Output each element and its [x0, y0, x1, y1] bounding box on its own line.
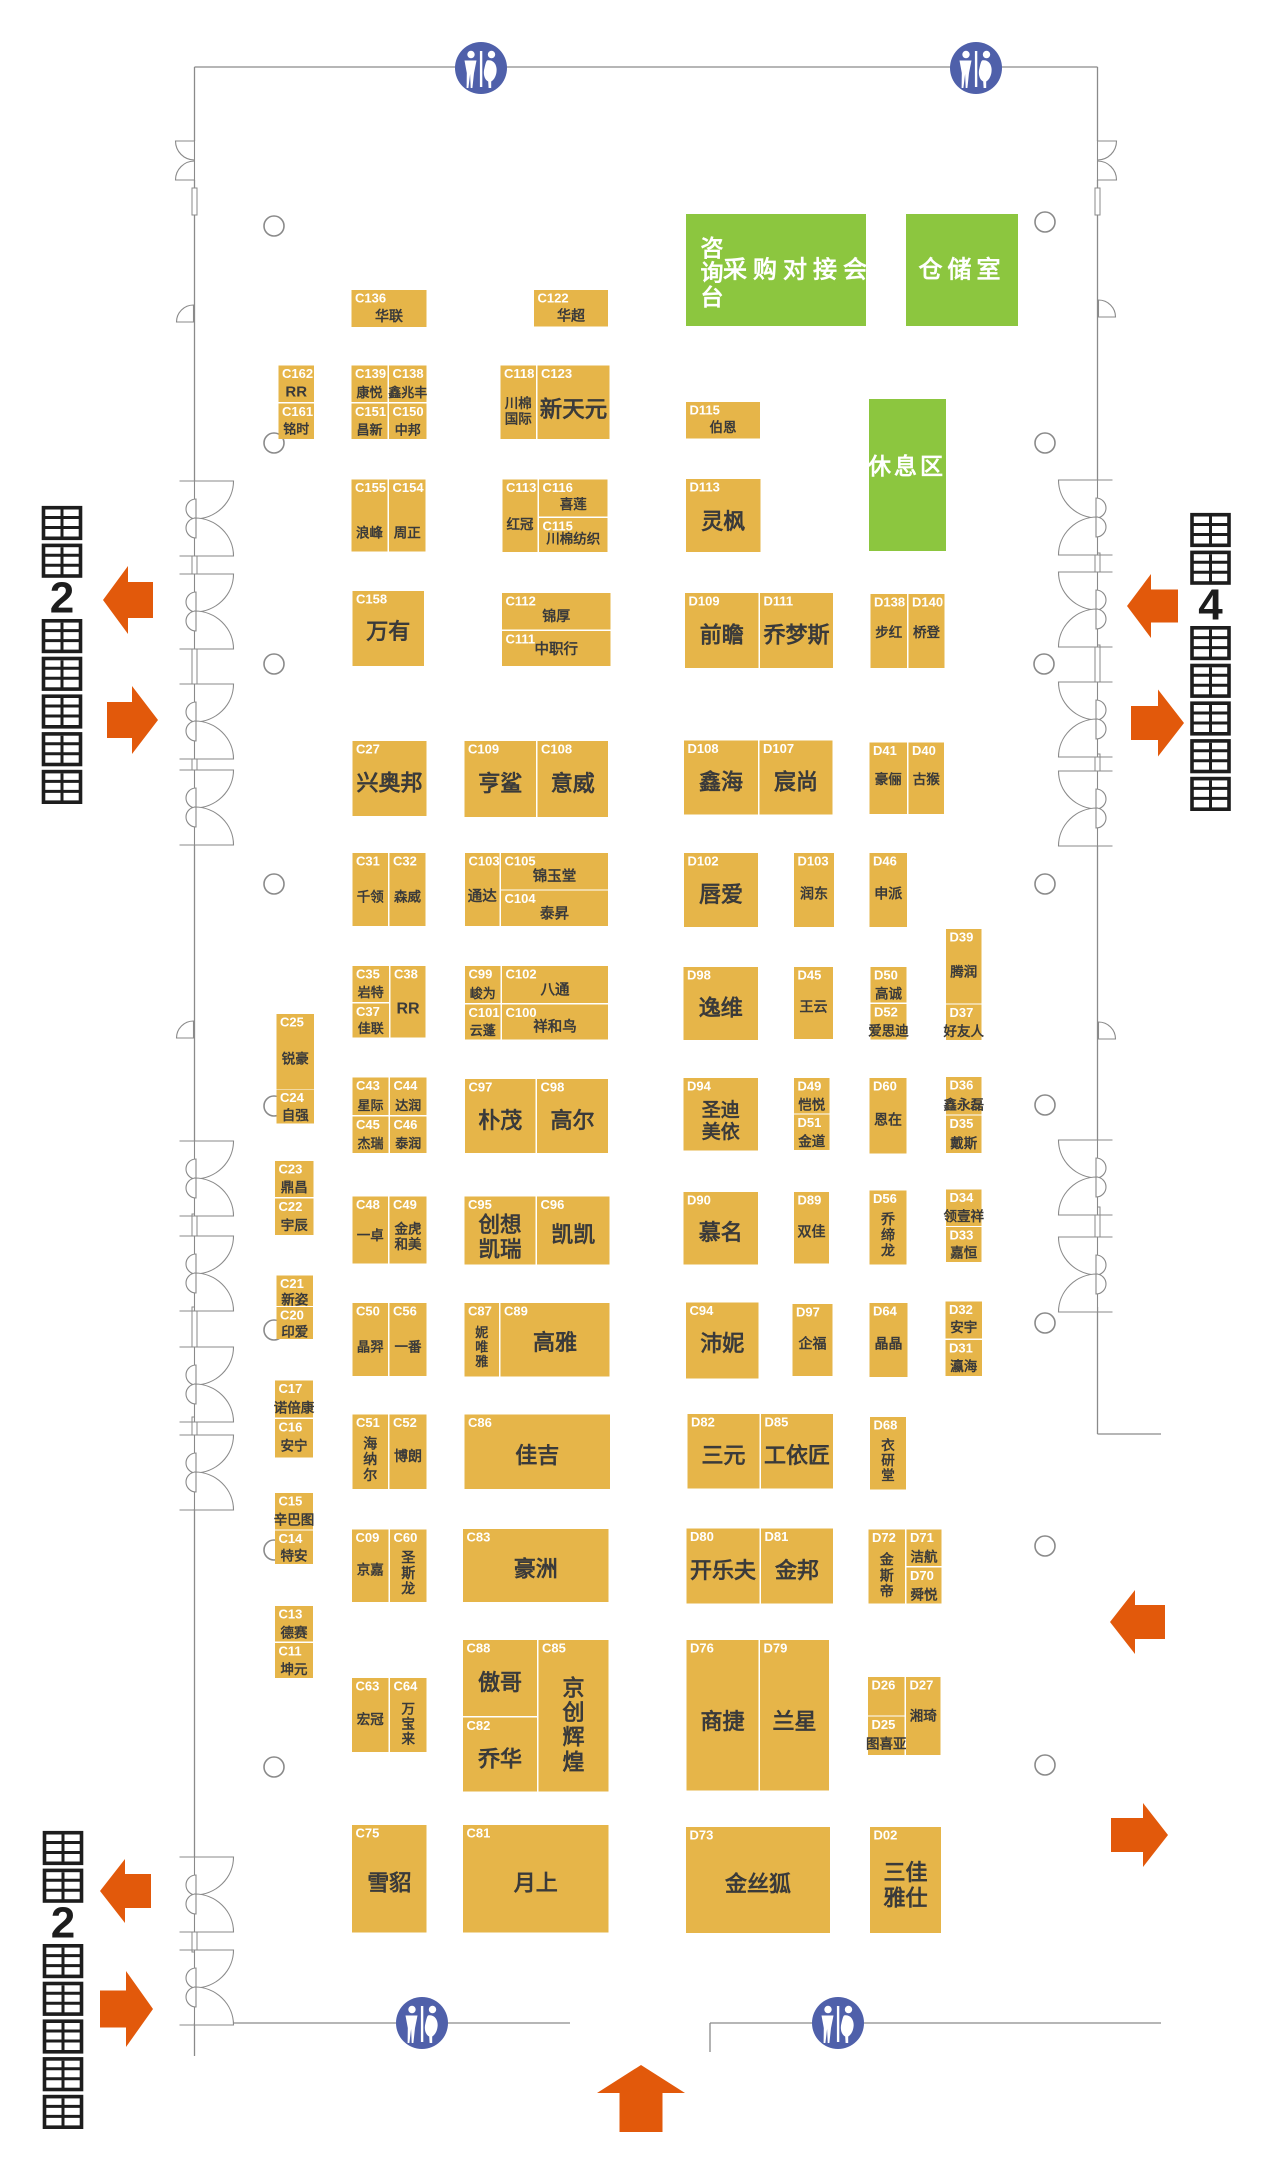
svg-text:C43: C43: [356, 1078, 380, 1093]
svg-text:C23: C23: [279, 1162, 303, 1177]
svg-text:D94: D94: [687, 1079, 712, 1094]
svg-text:高雅: 高雅: [533, 1330, 577, 1355]
svg-text:恩在: 恩在: [874, 1112, 902, 1128]
svg-text:步红: 步红: [875, 624, 903, 640]
svg-text:询: 询: [701, 260, 724, 286]
svg-text:C99: C99: [469, 967, 493, 982]
svg-text:C89: C89: [504, 1304, 528, 1319]
svg-text:凯凯: 凯凯: [551, 1222, 595, 1247]
svg-text:峻为: 峻为: [470, 986, 496, 1001]
svg-text:喜莲: 喜莲: [560, 496, 588, 512]
svg-text:斯: 斯: [401, 1565, 415, 1581]
svg-text:C103: C103: [469, 854, 500, 869]
svg-text:雅仕: 雅仕: [883, 1885, 927, 1910]
svg-text:衣: 衣: [881, 1437, 895, 1453]
svg-text:宸尚: 宸尚: [774, 769, 818, 794]
svg-text:C123: C123: [541, 366, 572, 381]
svg-text:帝: 帝: [880, 1583, 894, 1599]
svg-text:C56: C56: [393, 1304, 417, 1319]
svg-text:金邦: 金邦: [774, 1558, 819, 1583]
svg-text:云蓬: 云蓬: [470, 1023, 497, 1038]
svg-text:D45: D45: [798, 968, 822, 983]
svg-text:安宇: 安宇: [950, 1319, 977, 1335]
svg-text:国际: 国际: [505, 411, 533, 426]
svg-text:咨: 咨: [701, 235, 724, 261]
svg-text:工依匠: 工依匠: [764, 1443, 830, 1468]
svg-text:C13: C13: [279, 1607, 303, 1622]
svg-text:舜悦: 舜悦: [911, 1586, 939, 1602]
svg-text:创: 创: [561, 1700, 584, 1725]
svg-text:C35: C35: [356, 967, 380, 982]
svg-text:D73: D73: [690, 1828, 714, 1843]
svg-text:RR: RR: [285, 383, 307, 400]
svg-text:润东: 润东: [800, 886, 828, 902]
svg-text:C49: C49: [393, 1197, 417, 1212]
svg-text:亨鲨: 亨鲨: [478, 771, 522, 796]
svg-text:C52: C52: [393, 1415, 417, 1430]
svg-text:鑫海: 鑫海: [699, 769, 743, 794]
svg-text:杰瑞: 杰瑞: [357, 1136, 383, 1151]
svg-text:C150: C150: [393, 404, 424, 419]
svg-text:逸维: 逸维: [699, 995, 743, 1020]
svg-text:铭时: 铭时: [283, 422, 309, 437]
svg-text:D27: D27: [910, 1678, 934, 1693]
svg-text:宇辰: 宇辰: [281, 1217, 308, 1233]
svg-text:洁航: 洁航: [911, 1549, 939, 1565]
svg-text:红冠: 红冠: [507, 516, 535, 532]
svg-text:通达: 通达: [468, 887, 497, 905]
svg-text:缔: 缔: [881, 1227, 895, 1243]
svg-text:伯恩: 伯恩: [710, 419, 738, 435]
svg-text:乔华: 乔华: [477, 1746, 522, 1771]
svg-text:C16: C16: [279, 1420, 303, 1435]
svg-text:D89: D89: [798, 1193, 822, 1208]
svg-text:C44: C44: [394, 1078, 419, 1093]
svg-text:C105: C105: [505, 854, 536, 869]
svg-text:兰星: 兰星: [772, 1709, 816, 1734]
svg-text:中邦: 中邦: [395, 422, 421, 437]
svg-text:C82: C82: [467, 1718, 491, 1733]
svg-text:鼎昌: 鼎昌: [281, 1180, 308, 1195]
svg-text:京嘉: 京嘉: [357, 1562, 384, 1578]
svg-text:C102: C102: [506, 967, 537, 982]
svg-text:C32: C32: [393, 854, 417, 869]
svg-text:D49: D49: [798, 1079, 822, 1094]
svg-text:休息区: 休息区: [867, 453, 946, 479]
svg-text:C154: C154: [393, 480, 425, 495]
svg-text:C22: C22: [279, 1199, 303, 1214]
svg-text:高诚: 高诚: [875, 985, 903, 1001]
svg-text:湘琦: 湘琦: [910, 1708, 938, 1724]
svg-text:D64: D64: [873, 1304, 898, 1319]
svg-text:泰昇: 泰昇: [540, 905, 569, 923]
svg-text:C96: C96: [541, 1197, 565, 1212]
svg-text:佳吉: 佳吉: [515, 1443, 559, 1468]
svg-text:D81: D81: [765, 1529, 789, 1544]
svg-text:鑫兆丰: 鑫兆丰: [387, 385, 427, 400]
svg-text:月上: 月上: [513, 1871, 558, 1896]
svg-text:三元: 三元: [701, 1443, 745, 1468]
svg-text:安宁: 安宁: [281, 1437, 308, 1453]
svg-text:C95: C95: [468, 1197, 492, 1212]
svg-text:D140: D140: [912, 595, 943, 610]
svg-text:煌: 煌: [562, 1749, 584, 1774]
svg-text:印爱: 印爱: [281, 1323, 308, 1339]
svg-text:C37: C37: [356, 1004, 380, 1019]
svg-text:C20: C20: [280, 1308, 304, 1323]
svg-text:C51: C51: [356, 1415, 380, 1430]
svg-text:C118: C118: [504, 366, 534, 381]
svg-text:C122: C122: [538, 291, 569, 306]
svg-text:4: 4: [1198, 580, 1223, 629]
svg-text:C85: C85: [542, 1641, 566, 1656]
svg-text:德赛: 德赛: [281, 1624, 308, 1640]
svg-text:D37: D37: [950, 1005, 974, 1020]
svg-text:仓储室: 仓储室: [918, 256, 1006, 284]
svg-text:D50: D50: [874, 968, 898, 983]
svg-text:京: 京: [562, 1675, 584, 1700]
svg-text:D113: D113: [690, 480, 720, 495]
svg-text:尔: 尔: [363, 1467, 377, 1483]
svg-text:D79: D79: [764, 1641, 788, 1656]
svg-text:兴奥邦: 兴奥邦: [356, 771, 422, 796]
svg-text:D90: D90: [687, 1193, 711, 1208]
svg-text:宝: 宝: [402, 1715, 416, 1731]
svg-text:C104: C104: [505, 891, 537, 906]
svg-text:D76: D76: [690, 1641, 714, 1656]
svg-text:商捷: 商捷: [700, 1709, 745, 1734]
svg-text:圣迪: 圣迪: [702, 1099, 740, 1121]
svg-text:D85: D85: [765, 1415, 789, 1430]
svg-text:C45: C45: [356, 1117, 380, 1132]
svg-text:D02: D02: [874, 1828, 898, 1843]
svg-text:C111: C111: [506, 632, 536, 647]
svg-text:祥和鸟: 祥和鸟: [533, 1018, 577, 1036]
svg-text:金丝狐: 金丝狐: [724, 1872, 791, 1897]
svg-text:王云: 王云: [800, 999, 828, 1015]
svg-text:C09: C09: [356, 1530, 380, 1545]
svg-text:华超: 华超: [557, 308, 586, 324]
svg-text:C158: C158: [356, 592, 387, 607]
svg-text:美依: 美依: [702, 1120, 741, 1143]
svg-text:沛妮: 沛妮: [700, 1331, 744, 1356]
svg-text:来: 来: [401, 1732, 416, 1747]
svg-text:D97: D97: [796, 1305, 820, 1320]
svg-text:豪俪: 豪俪: [875, 771, 903, 787]
svg-text:慕名: 慕名: [698, 1220, 743, 1245]
svg-text:台: 台: [701, 284, 724, 310]
svg-text:C86: C86: [468, 1415, 492, 1430]
svg-text:意威: 意威: [551, 771, 595, 796]
svg-text:八通: 八通: [540, 981, 570, 998]
svg-text:C83: C83: [467, 1530, 491, 1545]
svg-text:申派: 申派: [874, 886, 903, 902]
svg-text:领壹祥: 领壹祥: [944, 1208, 985, 1224]
svg-text:一番: 一番: [395, 1338, 422, 1354]
svg-text:龙: 龙: [880, 1243, 895, 1259]
svg-text:纳: 纳: [363, 1451, 377, 1467]
svg-text:C48: C48: [356, 1197, 380, 1212]
svg-text:戴斯: 戴斯: [950, 1135, 978, 1151]
svg-text:泰润: 泰润: [394, 1136, 421, 1151]
svg-text:瀛海: 瀛海: [950, 1358, 978, 1374]
svg-text:千领: 千领: [357, 888, 384, 904]
svg-text:凯瑞: 凯瑞: [478, 1238, 521, 1262]
svg-text:古猴: 古猴: [913, 771, 941, 787]
svg-text:斯: 斯: [880, 1567, 894, 1583]
svg-text:C151: C151: [355, 404, 386, 419]
svg-text:C24: C24: [280, 1090, 305, 1105]
svg-text:D33: D33: [950, 1228, 974, 1243]
svg-text:晶晶: 晶晶: [875, 1336, 903, 1352]
svg-text:博朗: 博朗: [394, 1448, 422, 1464]
svg-text:金: 金: [879, 1552, 895, 1568]
svg-text:C81: C81: [467, 1826, 491, 1841]
svg-text:前瞻: 前瞻: [700, 623, 744, 648]
svg-text:康悦: 康悦: [356, 385, 382, 400]
svg-text:乔梦斯: 乔梦斯: [762, 623, 829, 648]
svg-text:圣: 圣: [400, 1549, 416, 1565]
svg-text:C17: C17: [279, 1381, 303, 1396]
svg-text:周正: 周正: [394, 525, 421, 540]
svg-text:D26: D26: [872, 1678, 896, 1693]
svg-text:D70: D70: [910, 1568, 934, 1583]
svg-text:特安: 特安: [281, 1547, 308, 1563]
svg-text:唇爱: 唇爱: [699, 882, 743, 907]
svg-text:RR: RR: [396, 1000, 420, 1017]
svg-text:研: 研: [881, 1453, 895, 1468]
svg-text:C113: C113: [506, 480, 536, 495]
svg-text:C31: C31: [356, 854, 380, 869]
svg-text:岩特: 岩特: [357, 985, 384, 1000]
svg-text:创想: 创想: [477, 1213, 521, 1237]
svg-text:C60: C60: [394, 1530, 418, 1545]
svg-text:堂: 堂: [881, 1467, 895, 1483]
svg-text:C161: C161: [282, 404, 313, 419]
svg-text:晶羿: 晶羿: [357, 1339, 384, 1354]
svg-text:万: 万: [401, 1701, 416, 1716]
svg-text:D41: D41: [873, 743, 897, 758]
svg-text:C88: C88: [467, 1641, 491, 1656]
svg-text:星际: 星际: [357, 1098, 383, 1113]
svg-text:C97: C97: [469, 1080, 493, 1095]
svg-text:唯: 唯: [475, 1340, 488, 1355]
svg-text:C75: C75: [356, 1826, 380, 1841]
svg-text:C14: C14: [279, 1531, 304, 1546]
svg-text:C155: C155: [355, 480, 386, 495]
svg-text:C46: C46: [394, 1117, 418, 1132]
svg-text:金道: 金道: [797, 1133, 826, 1149]
svg-text:嘉恒: 嘉恒: [949, 1244, 978, 1260]
svg-text:一卓: 一卓: [357, 1227, 384, 1243]
svg-text:D60: D60: [873, 1079, 897, 1094]
svg-text:企福: 企福: [798, 1336, 827, 1352]
svg-text:D68: D68: [874, 1418, 898, 1433]
svg-text:C64: C64: [394, 1679, 419, 1694]
svg-text:佳联: 佳联: [358, 1021, 384, 1036]
svg-text:C136: C136: [355, 291, 386, 306]
svg-text:C50: C50: [356, 1304, 380, 1319]
svg-text:D34: D34: [950, 1190, 975, 1205]
svg-text:C98: C98: [541, 1080, 565, 1095]
svg-text:D115: D115: [690, 403, 720, 418]
svg-text:图喜亚: 图喜亚: [866, 1736, 907, 1752]
svg-text:辉: 辉: [562, 1725, 584, 1750]
svg-text:C15: C15: [279, 1494, 303, 1509]
svg-text:采购对接会: 采购对接会: [723, 256, 873, 284]
svg-text:2: 2: [50, 573, 74, 622]
svg-text:C101: C101: [469, 1005, 500, 1020]
svg-text:豪洲: 豪洲: [514, 1557, 558, 1582]
svg-text:乔: 乔: [880, 1211, 896, 1227]
svg-text:锐豪: 锐豪: [282, 1051, 309, 1067]
svg-text:诺倍康: 诺倍康: [274, 1399, 315, 1415]
svg-text:宏冠: 宏冠: [357, 1711, 384, 1727]
svg-text:D80: D80: [690, 1529, 714, 1544]
svg-text:D36: D36: [950, 1078, 974, 1093]
svg-text:双佳: 双佳: [798, 1223, 826, 1239]
svg-text:D103: D103: [798, 854, 829, 869]
svg-text:C138: C138: [393, 366, 424, 381]
svg-text:锦玉堂: 锦玉堂: [533, 867, 577, 885]
svg-text:金虎: 金虎: [394, 1220, 422, 1236]
svg-text:新姿: 新姿: [281, 1291, 308, 1307]
svg-text:灵枫: 灵枫: [701, 509, 745, 534]
svg-text:川棉: 川棉: [504, 395, 532, 411]
svg-text:万有: 万有: [365, 619, 410, 644]
svg-text:D25: D25: [872, 1717, 896, 1732]
svg-text:C87: C87: [468, 1304, 492, 1319]
svg-text:三佳: 三佳: [883, 1860, 927, 1885]
svg-text:D71: D71: [910, 1530, 934, 1545]
svg-text:妮: 妮: [474, 1325, 488, 1340]
svg-text:C63: C63: [356, 1679, 380, 1694]
svg-text:川棉纺织: 川棉纺织: [545, 531, 600, 547]
svg-text:C21: C21: [280, 1276, 304, 1291]
svg-text:C162: C162: [282, 366, 313, 381]
svg-text:雅: 雅: [475, 1354, 488, 1369]
svg-text:爱思迪: 爱思迪: [868, 1022, 909, 1038]
svg-text:2: 2: [51, 1898, 75, 1947]
svg-text:昌新: 昌新: [356, 422, 382, 437]
svg-text:C11: C11: [279, 1644, 302, 1659]
svg-text:C116: C116: [543, 480, 573, 495]
svg-text:C94: C94: [690, 1303, 715, 1318]
svg-text:坤元: 坤元: [281, 1661, 308, 1677]
svg-text:达润: 达润: [395, 1098, 421, 1113]
svg-text:C27: C27: [356, 742, 380, 757]
svg-text:浪峰: 浪峰: [356, 524, 383, 540]
svg-text:D31: D31: [949, 1341, 973, 1356]
svg-text:D98: D98: [687, 968, 711, 983]
svg-text:中职行: 中职行: [535, 640, 579, 658]
svg-text:腾润: 腾润: [950, 964, 977, 980]
svg-text:D111: D111: [764, 594, 794, 609]
svg-text:龙: 龙: [400, 1581, 415, 1597]
svg-text:海: 海: [363, 1436, 377, 1452]
svg-text:D39: D39: [950, 930, 974, 945]
svg-text:D40: D40: [912, 743, 936, 758]
svg-text:C112: C112: [506, 594, 536, 609]
svg-text:D52: D52: [874, 1005, 898, 1020]
svg-text:华联: 华联: [375, 308, 404, 324]
svg-text:D35: D35: [950, 1116, 974, 1131]
svg-text:D72: D72: [872, 1530, 896, 1545]
svg-text:锦厚: 锦厚: [542, 608, 570, 624]
svg-text:D108: D108: [688, 741, 719, 756]
svg-text:桥登: 桥登: [913, 624, 941, 640]
svg-text:和美: 和美: [395, 1236, 422, 1252]
svg-text:雪貂: 雪貂: [367, 1871, 411, 1896]
svg-text:D32: D32: [949, 1302, 973, 1317]
svg-text:C108: C108: [541, 742, 572, 757]
svg-text:C100: C100: [506, 1005, 537, 1020]
svg-text:自强: 自强: [282, 1107, 309, 1123]
svg-text:C25: C25: [280, 1015, 304, 1030]
svg-text:开乐夫: 开乐夫: [690, 1558, 757, 1583]
svg-text:D109: D109: [689, 594, 720, 609]
svg-text:朴茂: 朴茂: [478, 1108, 522, 1133]
svg-text:C139: C139: [355, 366, 386, 381]
svg-text:D82: D82: [691, 1415, 715, 1430]
svg-text:D102: D102: [688, 854, 719, 869]
svg-text:D46: D46: [873, 854, 897, 869]
svg-text:好友人: 好友人: [943, 1023, 985, 1039]
svg-text:傲哥: 傲哥: [478, 1670, 522, 1695]
svg-text:高尔: 高尔: [550, 1108, 594, 1133]
svg-text:D138: D138: [874, 595, 905, 610]
svg-text:D51: D51: [798, 1115, 822, 1130]
svg-text:恺悦: 恺悦: [798, 1096, 826, 1112]
svg-text:D107: D107: [763, 741, 794, 756]
svg-text:D56: D56: [873, 1191, 897, 1206]
svg-text:森威: 森威: [394, 888, 421, 904]
svg-text:新天元: 新天元: [540, 396, 608, 422]
svg-text:C38: C38: [394, 967, 418, 982]
svg-text:辛巴图: 辛巴图: [274, 1512, 315, 1528]
svg-text:鑫永磊: 鑫永磊: [943, 1096, 985, 1112]
svg-text:C109: C109: [468, 742, 499, 757]
